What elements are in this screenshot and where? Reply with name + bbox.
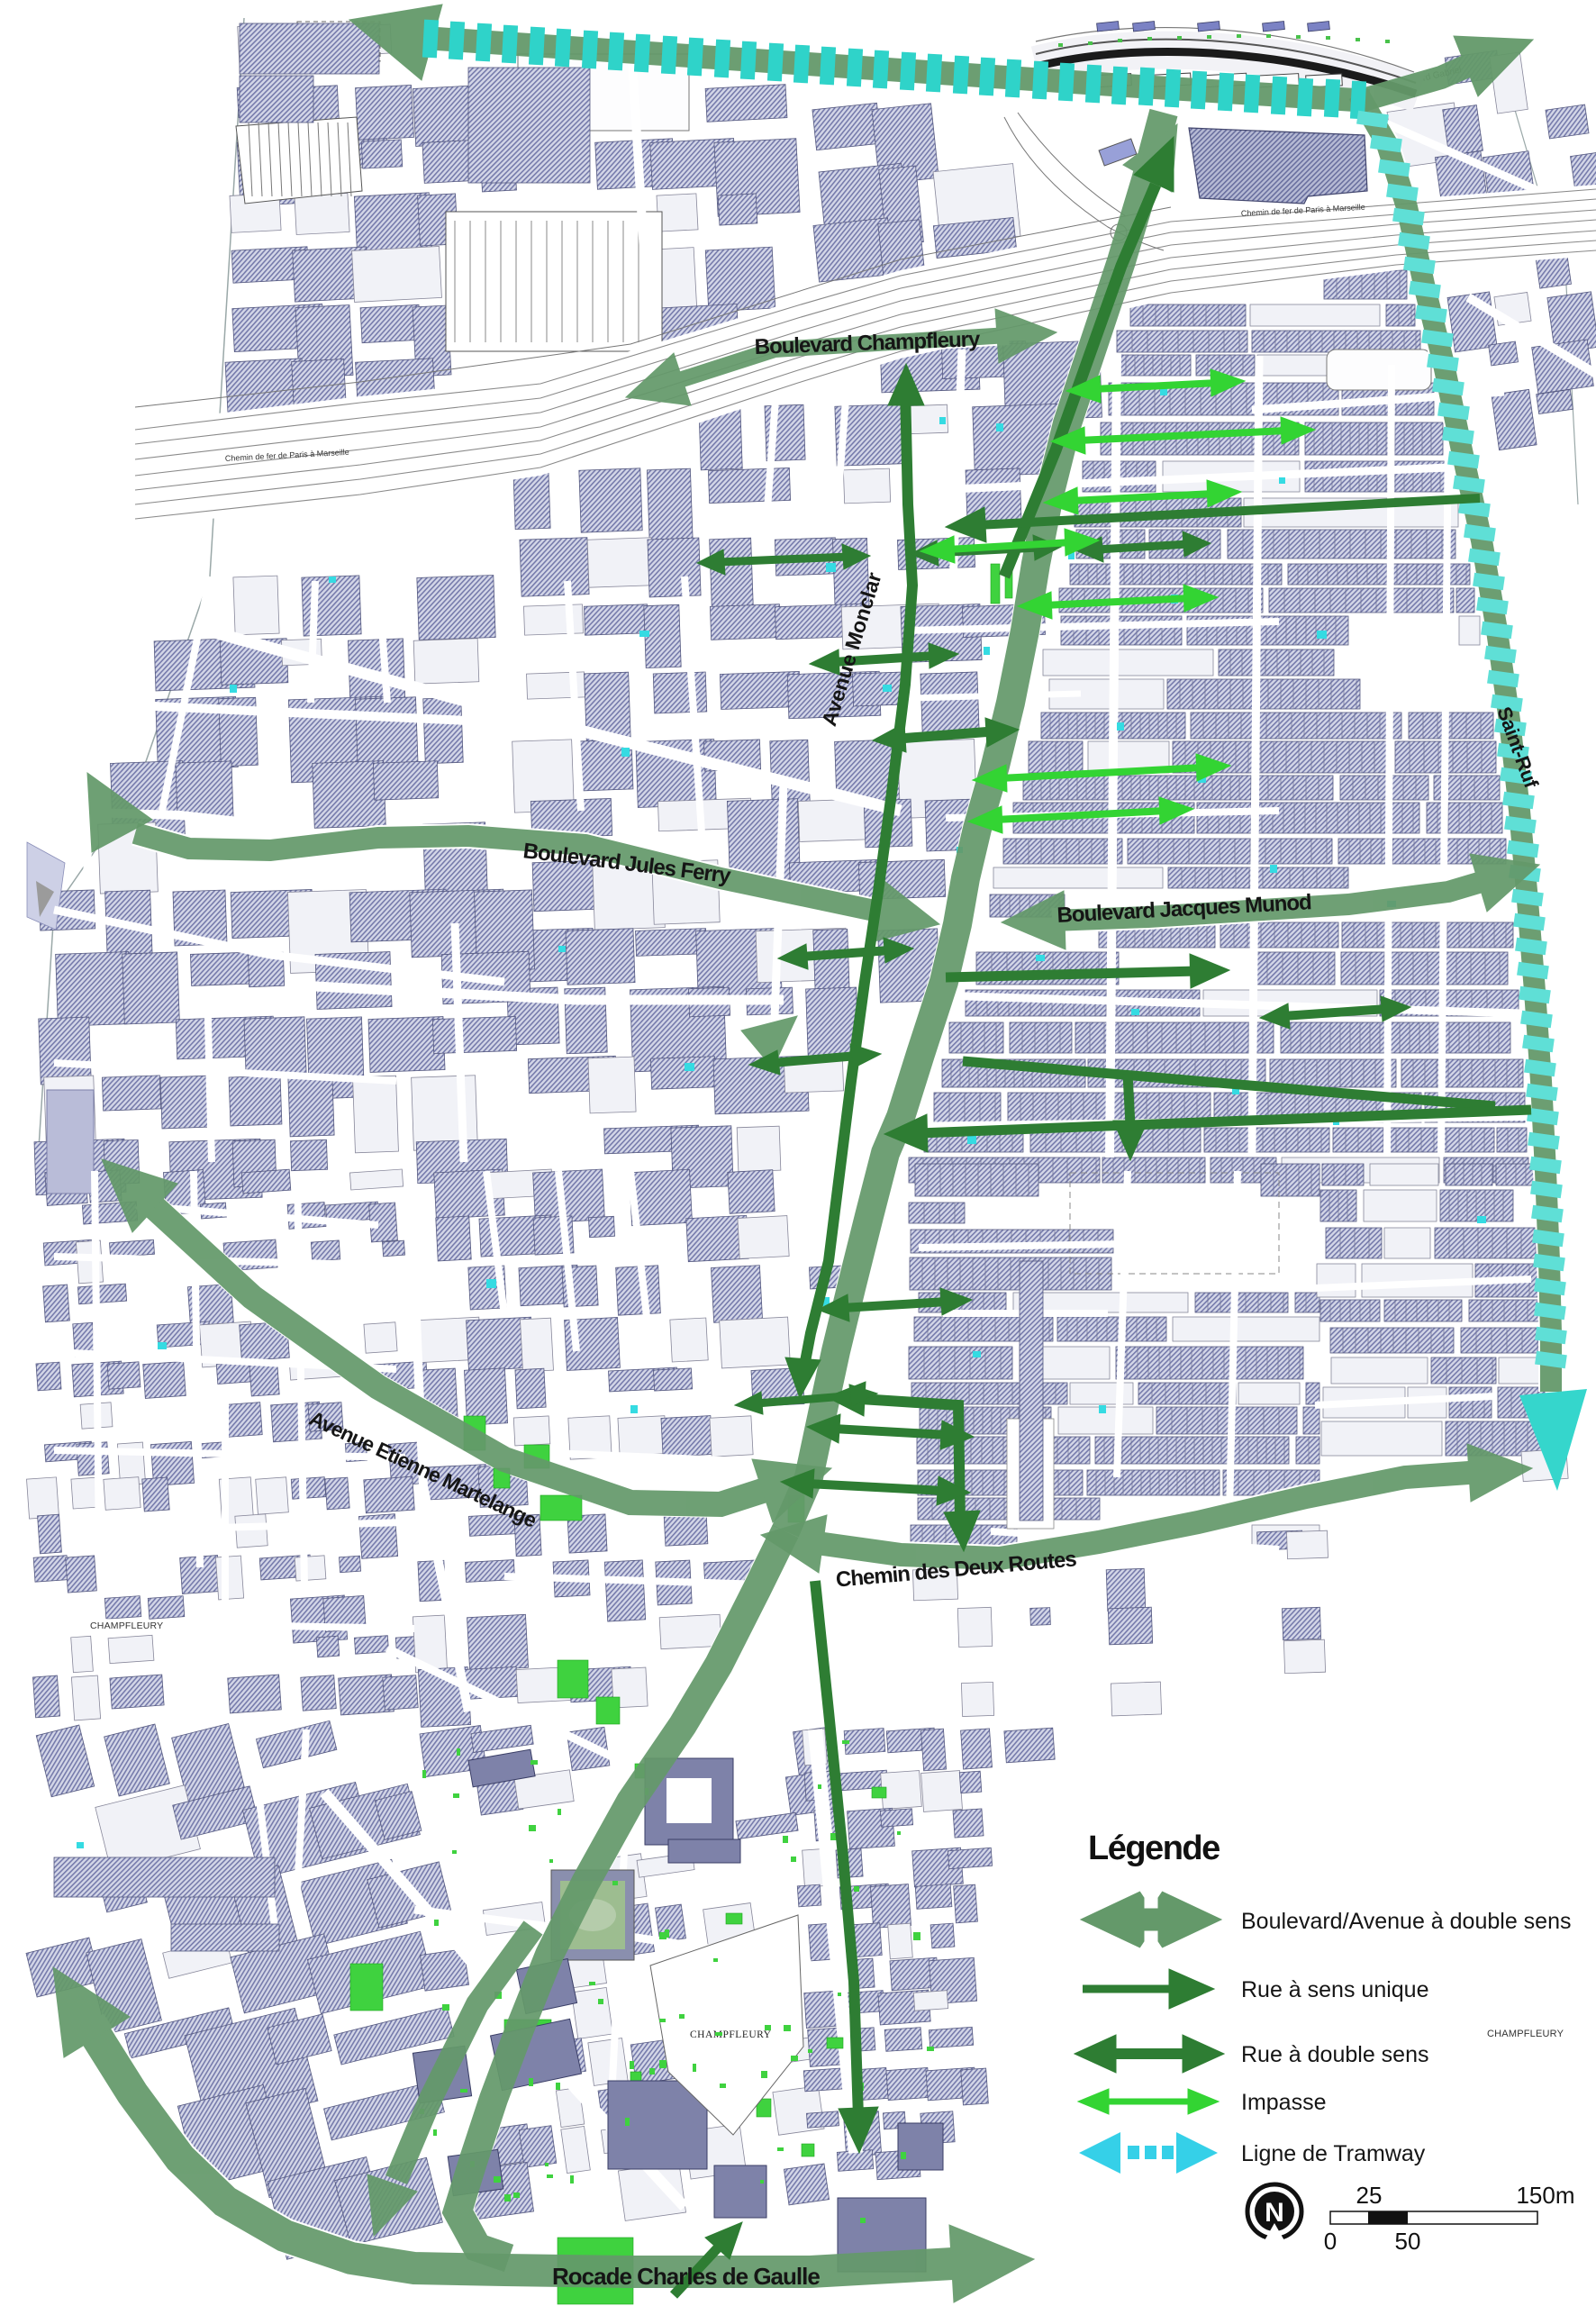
svg-text:Légende: Légende [1088, 1829, 1220, 1867]
svg-text:Ligne de Tramway: Ligne de Tramway [1241, 2141, 1426, 2166]
svg-text:25: 25 [1356, 2182, 1383, 2209]
svg-text:CHAMPFLEURY: CHAMPFLEURY [1487, 2029, 1564, 2039]
svg-text:Impasse: Impasse [1241, 2090, 1326, 2115]
svg-text:0: 0 [1324, 2228, 1337, 2255]
svg-text:150m: 150m [1516, 2182, 1574, 2209]
svg-text:Rocade Charles de Gaulle: Rocade Charles de Gaulle [552, 2263, 820, 2290]
svg-text:Rue à double sens: Rue à double sens [1241, 2042, 1428, 2067]
svg-text:50: 50 [1395, 2228, 1421, 2255]
svg-text:Rue à sens unique: Rue à sens unique [1241, 1977, 1428, 2002]
svg-text:N: N [1265, 2198, 1284, 2228]
svg-text:CHAMPFLEURY: CHAMPFLEURY [690, 2029, 772, 2040]
svg-text:CHAMPFLEURY: CHAMPFLEURY [90, 1621, 163, 1631]
svg-text:Boulevard/Avenue à double sens: Boulevard/Avenue à double sens [1241, 1909, 1571, 1934]
